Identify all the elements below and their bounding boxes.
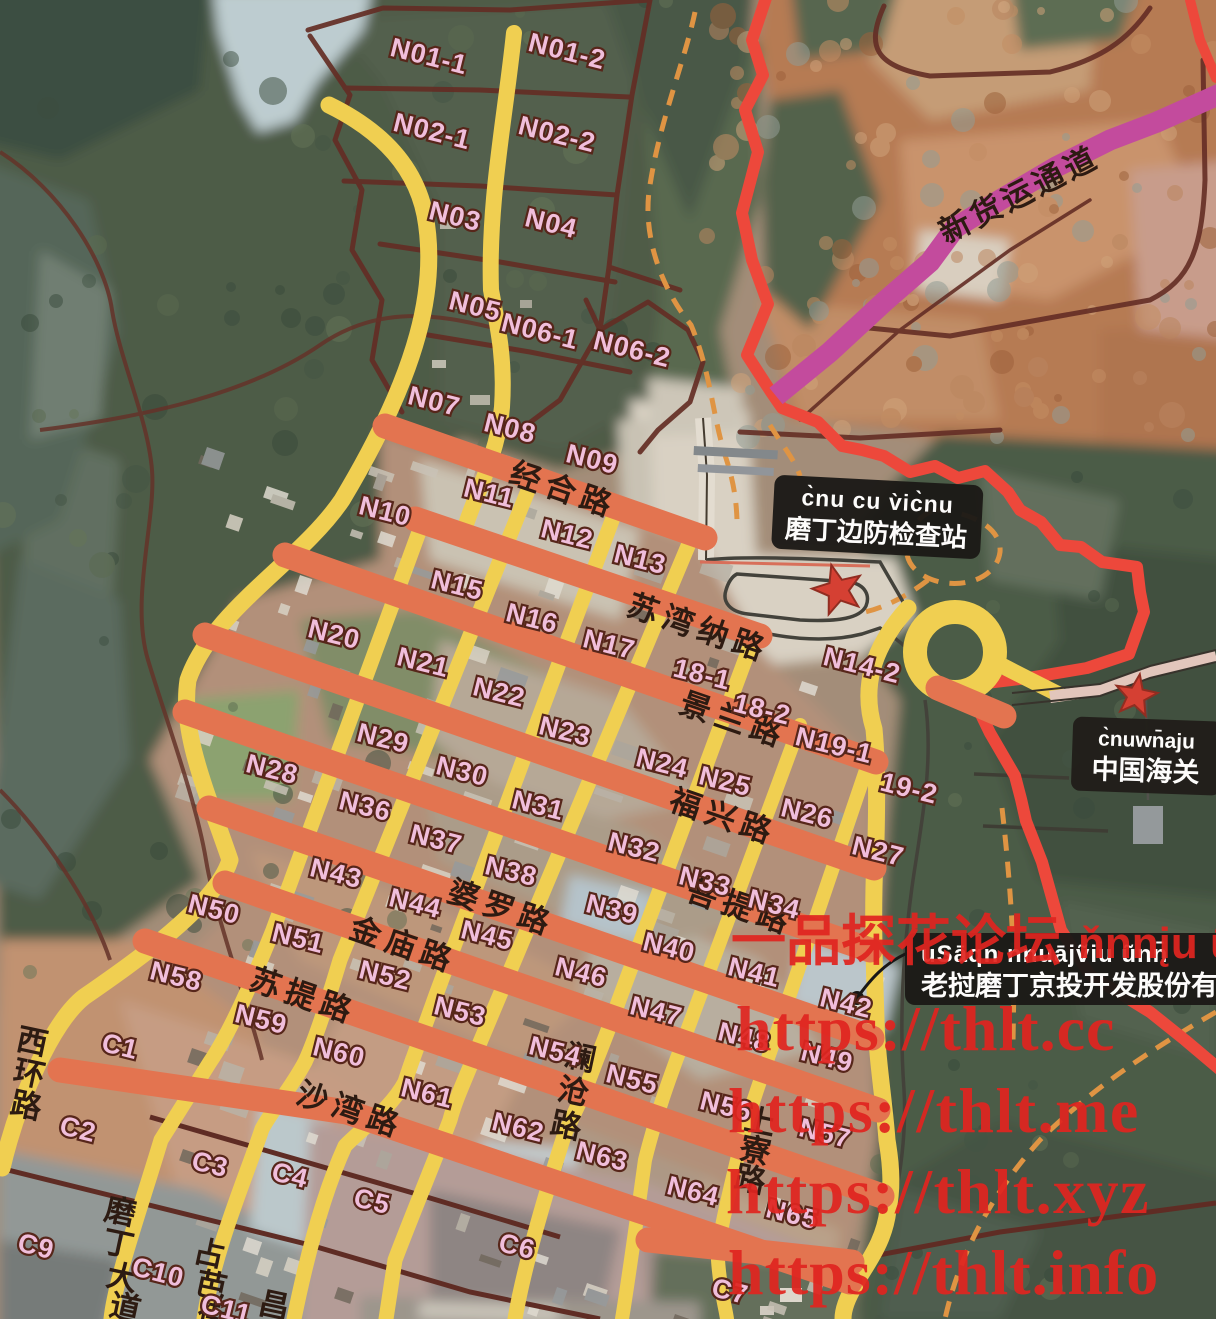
svg-text:https://thlt.me: https://thlt.me [728,1075,1140,1146]
svg-text:https://thlt.info: https://thlt.info [728,1237,1159,1308]
svg-text:https://thlt.xyz: https://thlt.xyz [726,1156,1150,1227]
svg-text:ňnnįu ũnñ: ňnnįu ũnñ [1078,919,1216,968]
svg-text:https://thlt.cc: https://thlt.cc [736,993,1115,1064]
svg-text:一品探花论坛: 一品探花论坛 [731,910,1061,972]
